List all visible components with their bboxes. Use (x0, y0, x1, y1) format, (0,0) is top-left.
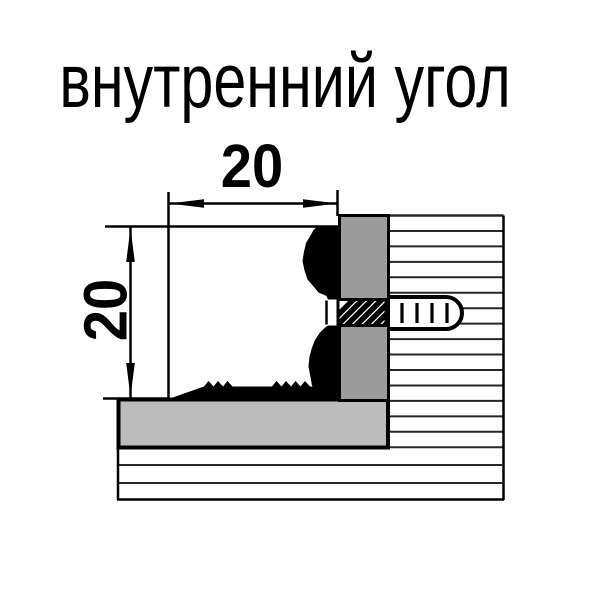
serrated-upper-mass (303, 228, 342, 300)
dimension-height-label: 20 (72, 279, 140, 341)
dimension-height: 20 (72, 228, 140, 398)
screw (388, 297, 462, 329)
adhesive-serrated-layer (169, 228, 342, 401)
screw-shank (388, 297, 462, 329)
dimension-width-label: 20 (221, 133, 283, 201)
profile-corner-diagram: внутренний угол (0, 0, 600, 600)
base-bar (119, 400, 389, 448)
arrow-left-icon (170, 199, 205, 208)
arrow-up-icon (126, 228, 135, 262)
dimension-width: 20 (170, 133, 338, 208)
arrow-down-icon (126, 363, 135, 397)
wall-section (388, 216, 504, 448)
arrow-right-icon (303, 199, 338, 208)
technical-drawing: 20 20 (0, 0, 600, 600)
floor-section (117, 447, 504, 500)
